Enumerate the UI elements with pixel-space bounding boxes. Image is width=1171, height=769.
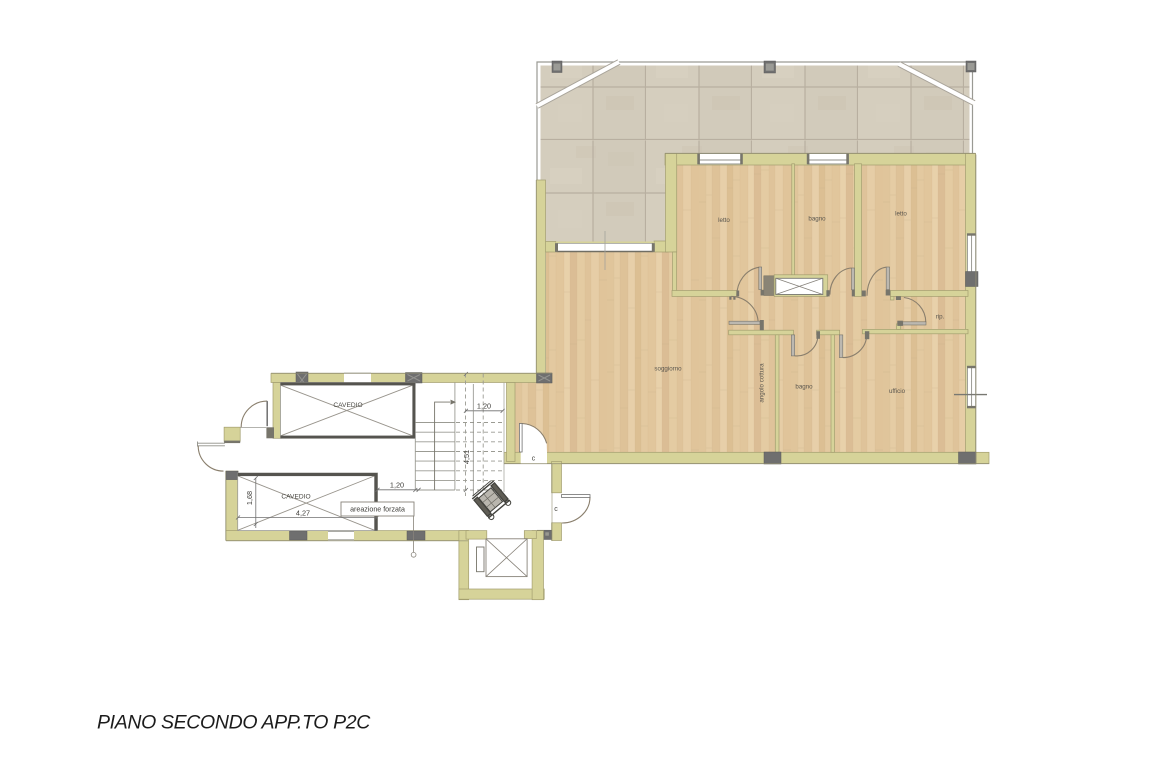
- svg-text:c: c: [554, 506, 558, 513]
- svg-text:soggiorno: soggiorno: [654, 366, 682, 373]
- svg-text:CAVEDIO: CAVEDIO: [333, 402, 362, 409]
- svg-text:CAVEDIO: CAVEDIO: [281, 494, 310, 501]
- svg-text:areazione forzata: areazione forzata: [350, 506, 405, 514]
- svg-text:bagno: bagno: [795, 384, 813, 391]
- svg-text:letto: letto: [718, 217, 730, 224]
- svg-text:angolo cottura: angolo cottura: [759, 363, 766, 403]
- svg-text:ufficio: ufficio: [889, 388, 906, 395]
- svg-text:1,20: 1,20: [477, 402, 491, 411]
- svg-text:bagno: bagno: [808, 216, 826, 223]
- svg-text:rip.: rip.: [936, 314, 945, 321]
- svg-text:c: c: [532, 456, 536, 463]
- svg-text:1,20: 1,20: [390, 481, 404, 490]
- svg-text:letto: letto: [895, 211, 907, 218]
- svg-text:PIANO SECONDO APP.TO P2C: PIANO SECONDO APP.TO P2C: [97, 712, 371, 734]
- svg-text:1,68: 1,68: [245, 491, 254, 505]
- svg-text:4,27: 4,27: [296, 509, 310, 518]
- svg-text:4,51: 4,51: [462, 450, 471, 464]
